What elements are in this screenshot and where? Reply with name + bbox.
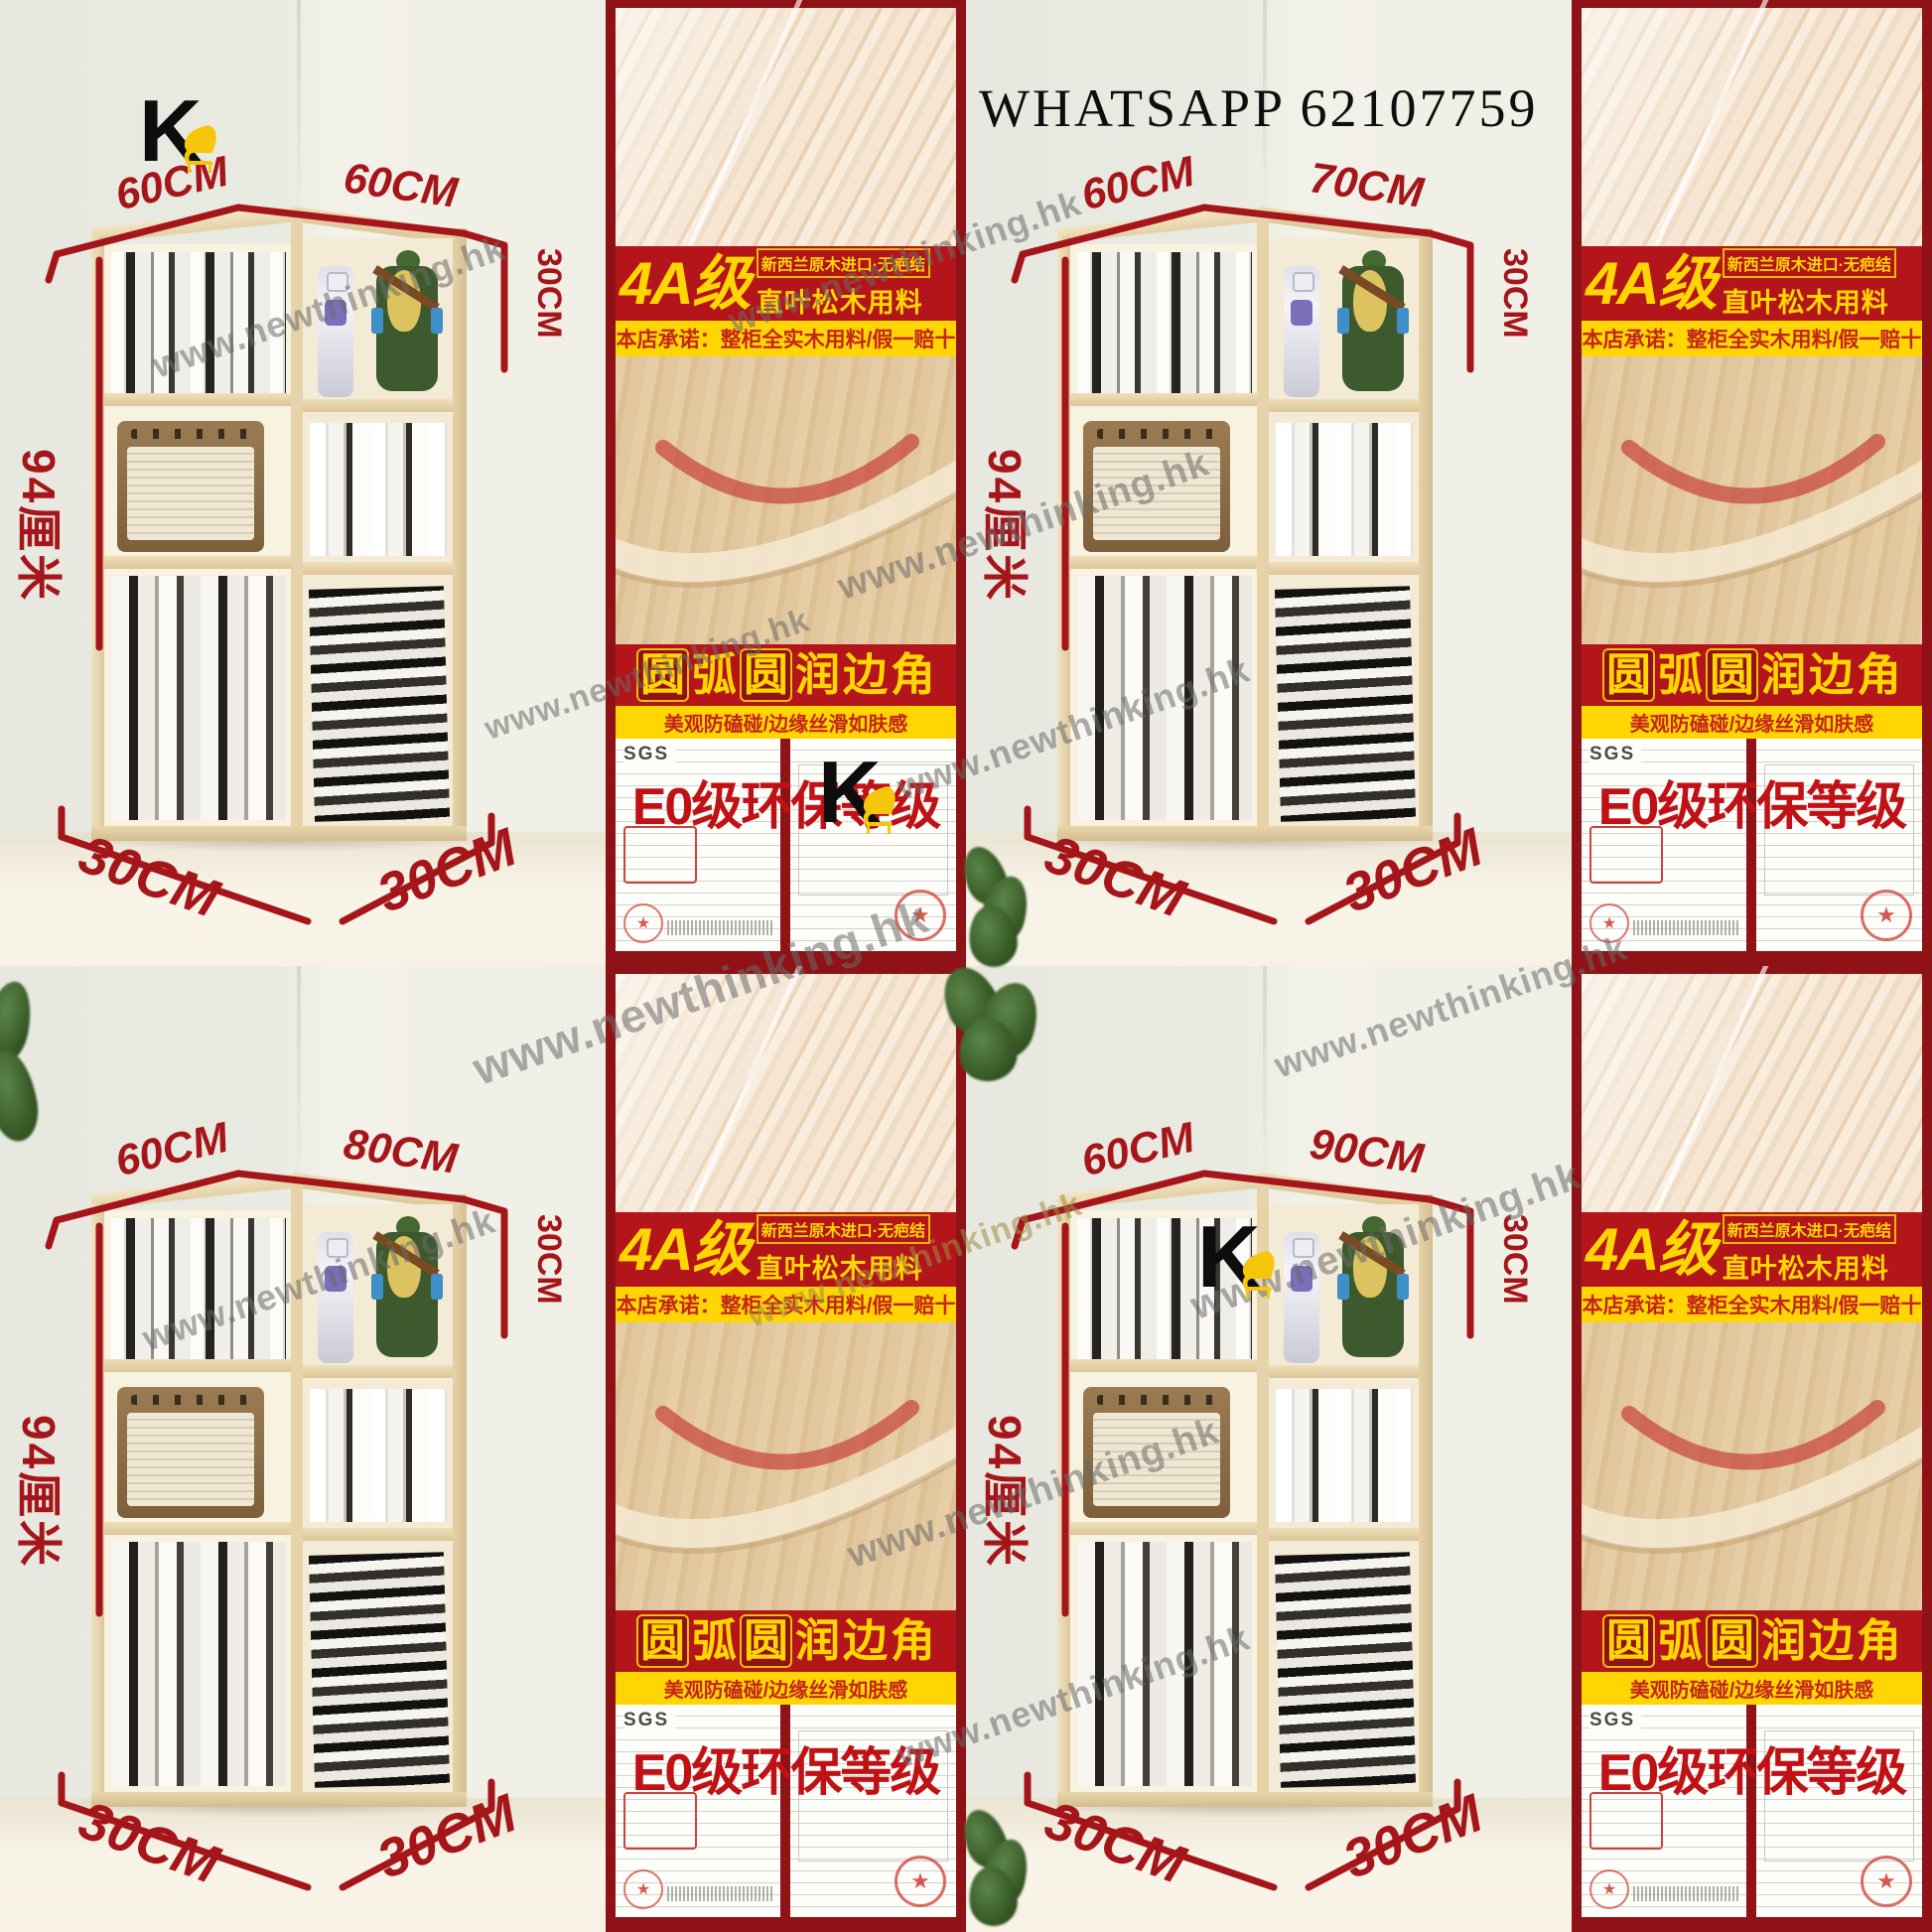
stamp-star-icon: ★ [1602,1879,1616,1899]
brand-logo: K [1197,1217,1277,1297]
pine-wood-photo [1582,974,1922,1212]
product-photo: 60CM 70CM 94厘米 30CM 30CM 30CM [966,0,1572,966]
edge-char: 润 [1761,1616,1806,1666]
edge-char: 圆 [1706,648,1758,702]
edge-char: 角 [1857,1616,1901,1666]
edge-char: 润 [1761,650,1806,700]
plant [965,836,1036,971]
product-photo: 60CM 80CM 94厘米 30CM 30CM 30CM [0,966,606,1932]
edge-char: 润 [795,1616,840,1666]
edge-char: 角 [891,1616,935,1666]
stamp-icon: ★ [623,1869,663,1909]
grade-badge: 4A级 新西兰原木进口·无疤结 直叶松木用料 [1582,1212,1922,1287]
edge-char: 圆 [1706,1614,1758,1668]
rounded-edge-graphic [616,1322,956,1610]
sgs-logo: SGS [623,1710,675,1731]
brand-logo: K [139,91,218,171]
stamp-icon: ★ [623,903,663,943]
dimension-label-depth: 30CM [1498,248,1532,339]
chair-icon [1237,1249,1281,1299]
chair-icon [179,123,222,173]
dimension-label-depth: 30CM [1498,1214,1532,1305]
grade-badge: 4A级 新西兰原木进口·无疤结 直叶松木用料 [1582,246,1922,321]
environment-grade-title: E0级环保等级 [1574,1730,1930,1805]
rounded-edge-photo [616,356,956,644]
product-collage: 60CM 90CM 94厘米 30CM 30CM 30CM 4A级 新西兰原木进… [0,0,1932,1932]
marketing-panel: 4A级 新西兰原木进口·无疤结 直叶松木用料 本店承诺：整柜全实木用料/假一赔十… [1572,0,1932,966]
plant [965,1803,1036,1932]
brand-logo: K [818,753,897,832]
grade-subtitles: 新西兰原木进口·无疤结 直叶松木用料 [1723,1214,1896,1286]
certificates-section: SGS ★ ★ E0级环保等级 [1582,1705,1922,1924]
pine-wood-photo [1582,8,1922,246]
edge-char: 边 [843,1616,888,1666]
grade-subtitles: 新西兰原木进口·无疤结 直叶松木用料 [1723,248,1896,320]
grade-subtitle-origin: 新西兰原木进口·无疤结 [757,1214,930,1244]
edge-feature-title: 圆弧圆润边角 [1582,1610,1922,1672]
edge-feature-title: 圆弧圆润边角 [616,1610,956,1672]
edge-char: 角 [1857,650,1901,700]
edge-feature-title: 圆弧圆润边角 [1582,644,1922,706]
marketing-panel: 4A级 新西兰原木进口·无疤结 直叶松木用料 本店承诺：整柜全实木用料/假一赔十… [606,966,966,1932]
edge-char: 边 [1809,1616,1854,1666]
edge-char: 角 [891,650,935,700]
dimension-label-depth: 30CM [532,1214,566,1305]
stamp-icon: ★ [1589,1869,1629,1909]
plant [0,981,50,1166]
edge-char: 圆 [636,1614,689,1668]
edge-feature-subtitle: 美观防磕碰/边缘丝滑如肤感 [1582,706,1922,739]
dimension-label-height: 94厘米 [16,449,62,603]
sgs-logo: SGS [623,744,675,765]
grade-subtitle-origin: 新西兰原木进口·无疤结 [1723,1214,1896,1244]
sgs-logo: SGS [1589,1710,1641,1731]
edge-char: 圆 [1602,1614,1655,1668]
dimension-lines [0,966,606,1932]
edge-feature-subtitle: 美观防磕碰/边缘丝滑如肤感 [616,1672,956,1705]
grade-title: 4A级 [620,1221,750,1278]
marketing-panel: 4A级 新西兰原木进口·无疤结 直叶松木用料 本店承诺：整柜全实木用料/假一赔十… [606,0,966,966]
certificate-signature [667,1886,772,1901]
grade-subtitle-material: 直叶松木用料 [1723,1247,1896,1286]
edge-char: 圆 [740,1614,792,1668]
stamp-star-icon: ★ [910,1868,930,1894]
certificates-section: SGS ★ ★ E0级环保等级 [1582,739,1922,958]
stamp-star-icon: ★ [1876,902,1896,928]
stamp-icon: ★ [1861,1856,1912,1907]
edge-char: 弧 [692,1616,737,1666]
plant [945,966,1048,1087]
store-promise-bar: 本店承诺：整柜全实木用料/假一赔十 [1582,1287,1922,1322]
dimension-label-height: 94厘米 [16,1415,62,1569]
edge-feature-subtitle: 美观防磕碰/边缘丝滑如肤感 [616,706,956,739]
rounded-edge-photo [616,1322,956,1610]
stamp-star-icon: ★ [636,1879,650,1899]
rounded-edge-photo [1582,1322,1922,1610]
stamp-icon: ★ [895,1856,946,1907]
rounded-edge-graphic [1582,356,1922,644]
dimension-lines [966,0,1572,966]
stamp-star-icon: ★ [1876,1868,1896,1894]
edge-char: 弧 [1658,650,1703,700]
certificate-signature [667,920,772,935]
product-photo: 60CM 90CM 94厘米 30CM 30CM 30CM [966,966,1572,1932]
rounded-edge-graphic [616,356,956,644]
certificate-signature [1633,1886,1738,1901]
chair-icon [858,784,901,834]
certificate-signature [1633,920,1738,935]
marketing-panel: 4A级 新西兰原木进口·无疤结 直叶松木用料 本店承诺：整柜全实木用料/假一赔十… [1572,966,1932,1932]
edge-char: 弧 [1658,1616,1703,1666]
edge-char: 圆 [1602,648,1655,702]
whatsapp-contact-text: WHATSAPP 62107759 [979,77,1539,139]
grade-title: 4A级 [1586,1221,1716,1278]
stamp-icon: ★ [1861,890,1912,941]
product-photo: 60CM 60CM 94厘米 30CM 30CM 30CM [0,0,606,966]
edge-char: 边 [843,650,888,700]
edge-char: 润 [795,650,840,700]
dimension-lines [0,0,606,966]
store-promise-bar: 本店承诺：整柜全实木用料/假一赔十 [616,321,956,356]
dimension-lines [966,966,1572,1932]
edge-char: 边 [1809,650,1854,700]
grade-subtitle-material: 直叶松木用料 [1723,281,1896,320]
pine-wood-photo [616,8,956,246]
store-promise-bar: 本店承诺：整柜全实木用料/假一赔十 [1582,321,1922,356]
rounded-edge-graphic [1582,1322,1922,1610]
grade-title: 4A级 [1586,255,1716,312]
edge-feature-subtitle: 美观防磕碰/边缘丝滑如肤感 [1582,1672,1922,1705]
dimension-label-depth: 30CM [532,248,566,339]
grade-subtitle-origin: 新西兰原木进口·无疤结 [1723,248,1896,278]
rounded-edge-photo [1582,356,1922,644]
environment-grade-title: E0级环保等级 [1574,764,1930,839]
sgs-logo: SGS [1589,744,1641,765]
stamp-star-icon: ★ [636,913,650,933]
product-tile: 60CM 80CM 94厘米 30CM 30CM 30CM 4A级 新西兰原木进… [0,966,966,1932]
